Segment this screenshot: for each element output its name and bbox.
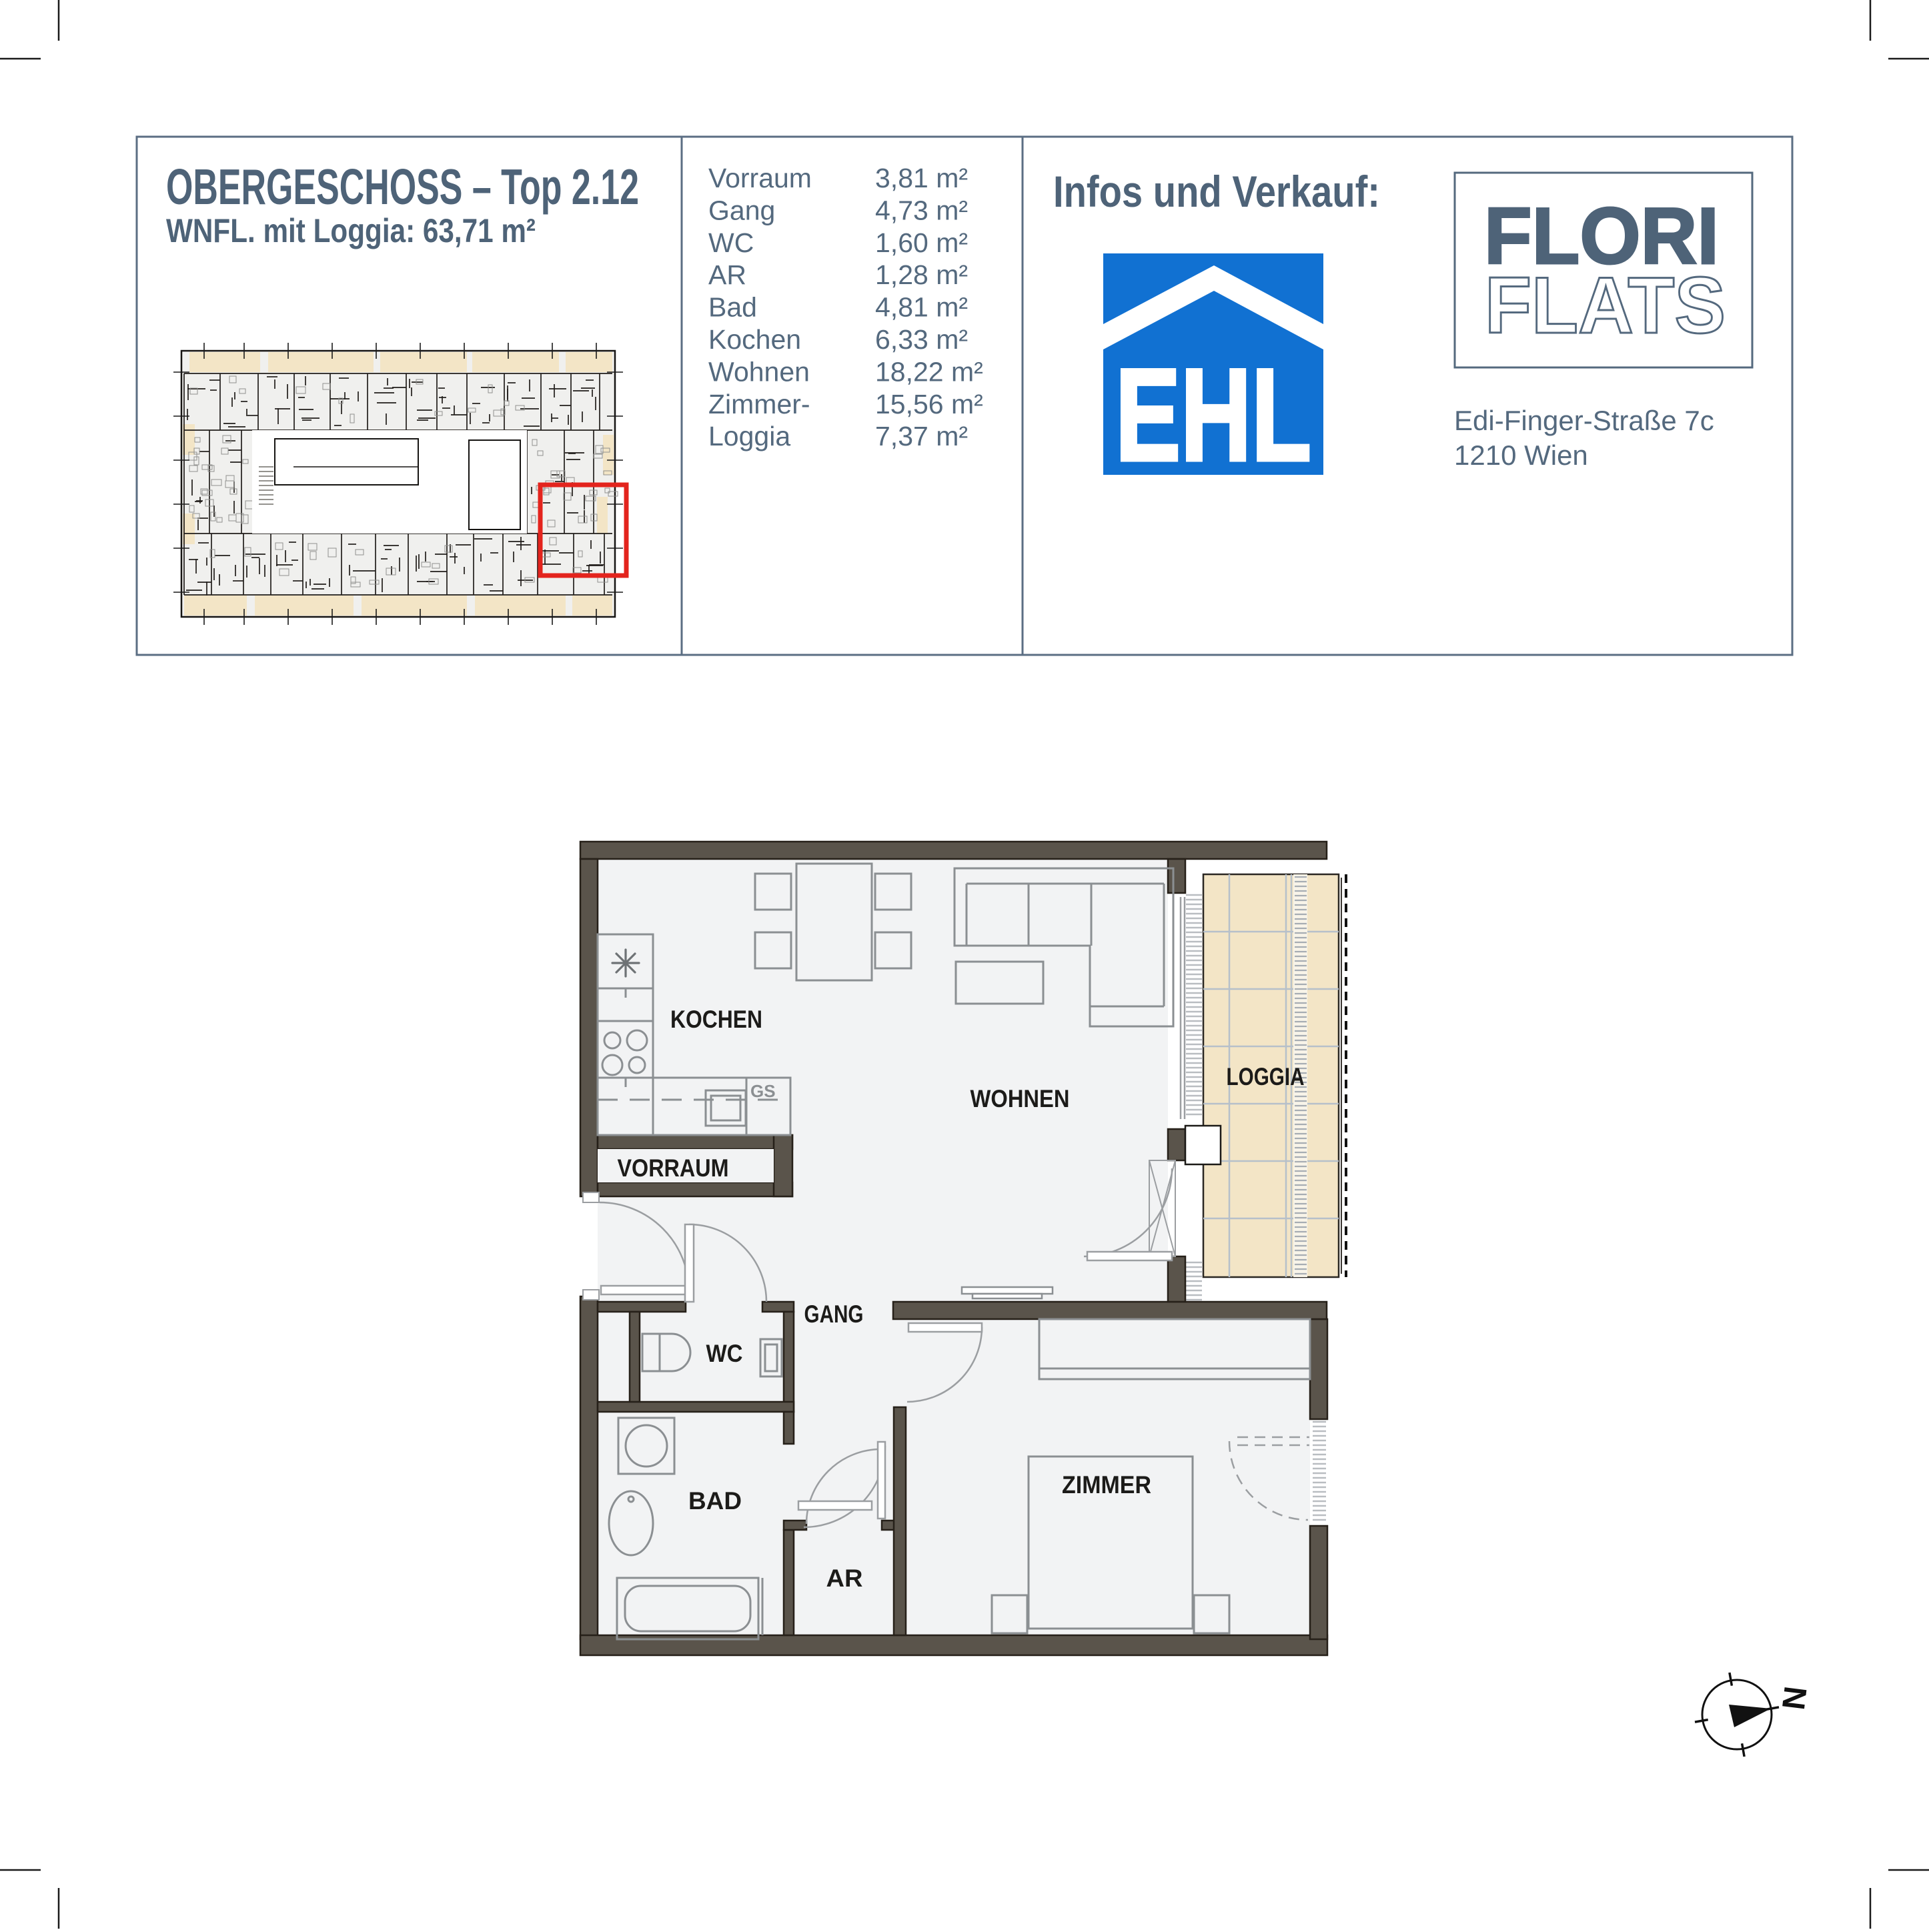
svg-text:3,81 m²: 3,81 m² bbox=[875, 163, 968, 193]
svg-text:1,60 m²: 1,60 m² bbox=[875, 227, 968, 258]
svg-text:1210 Wien: 1210 Wien bbox=[1454, 439, 1588, 471]
svg-text:Bad: Bad bbox=[708, 292, 757, 323]
svg-text:VORRAUM: VORRAUM bbox=[618, 1154, 729, 1182]
svg-text:1,28 m²: 1,28 m² bbox=[875, 259, 968, 290]
svg-text:Kochen: Kochen bbox=[708, 324, 801, 355]
svg-text:LOGGIA: LOGGIA bbox=[1227, 1063, 1305, 1090]
svg-text:WC: WC bbox=[708, 227, 754, 258]
svg-text:WC: WC bbox=[706, 1340, 743, 1367]
svg-text:Zimmer-: Zimmer- bbox=[708, 389, 810, 419]
svg-text:GS: GS bbox=[750, 1081, 776, 1101]
svg-text:BAD: BAD bbox=[688, 1487, 742, 1515]
svg-text:N: N bbox=[1775, 1685, 1813, 1712]
svg-text:WOHNEN: WOHNEN bbox=[971, 1085, 1070, 1112]
svg-text:KOCHEN: KOCHEN bbox=[670, 1006, 762, 1033]
svg-text:WNFL. mit Loggia: 63,71 m²: WNFL. mit Loggia: 63,71 m² bbox=[166, 212, 536, 249]
svg-text:4,81 m²: 4,81 m² bbox=[875, 292, 968, 323]
svg-text:FLATS: FLATS bbox=[1485, 261, 1726, 350]
svg-text:18,22 m²: 18,22 m² bbox=[875, 356, 983, 387]
svg-text:Infos und Verkauf:: Infos und Verkauf: bbox=[1053, 167, 1380, 216]
svg-text:GANG: GANG bbox=[804, 1300, 864, 1328]
svg-text:Vorraum: Vorraum bbox=[708, 163, 812, 193]
svg-text:AR: AR bbox=[708, 259, 746, 290]
svg-text:AR: AR bbox=[826, 1565, 863, 1592]
svg-text:7,37 m²: 7,37 m² bbox=[875, 421, 968, 451]
svg-text:Gang: Gang bbox=[708, 195, 775, 225]
svg-text:EHL: EHL bbox=[1115, 341, 1311, 488]
svg-text:15,56 m²: 15,56 m² bbox=[875, 389, 983, 419]
svg-text:ZIMMER: ZIMMER bbox=[1062, 1471, 1151, 1499]
svg-text:4,73 m²: 4,73 m² bbox=[875, 195, 968, 225]
svg-text:6,33 m²: 6,33 m² bbox=[875, 324, 968, 355]
svg-text:Edi-Finger-Straße 7c: Edi-Finger-Straße 7c bbox=[1454, 405, 1714, 436]
svg-text:Loggia: Loggia bbox=[708, 421, 790, 451]
svg-text:OBERGESCHOSS – Top 2.12: OBERGESCHOSS – Top 2.12 bbox=[166, 159, 639, 215]
svg-text:Wohnen: Wohnen bbox=[708, 356, 810, 387]
